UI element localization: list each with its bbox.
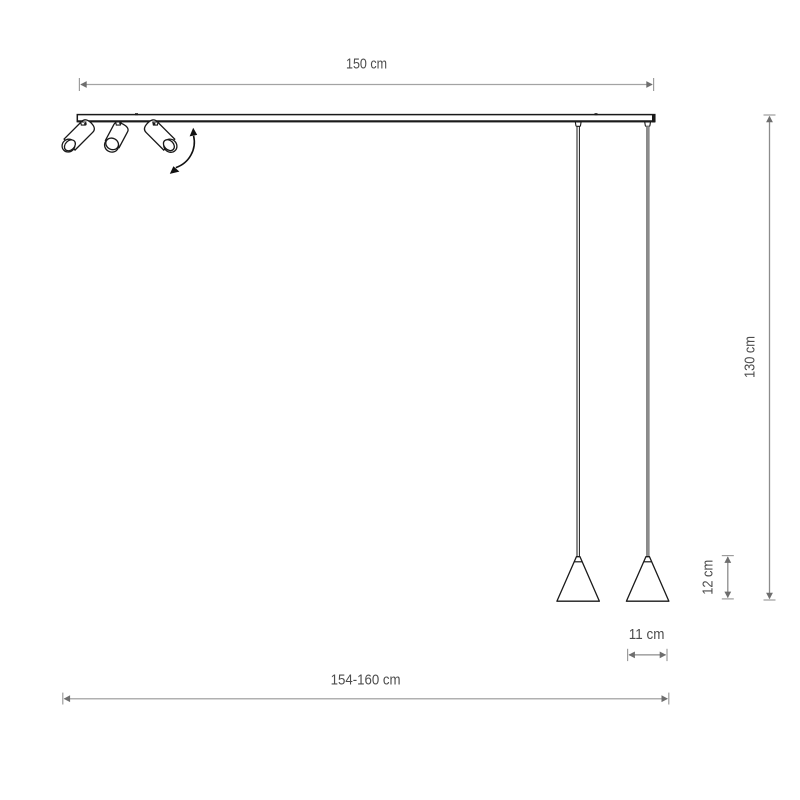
svg-text:154-160 cm: 154-160 cm (331, 671, 401, 688)
svg-text:12 cm: 12 cm (699, 560, 716, 595)
svg-text:11 cm: 11 cm (629, 626, 665, 643)
svg-text:150 cm: 150 cm (346, 55, 387, 72)
svg-text:130 cm: 130 cm (742, 336, 759, 378)
